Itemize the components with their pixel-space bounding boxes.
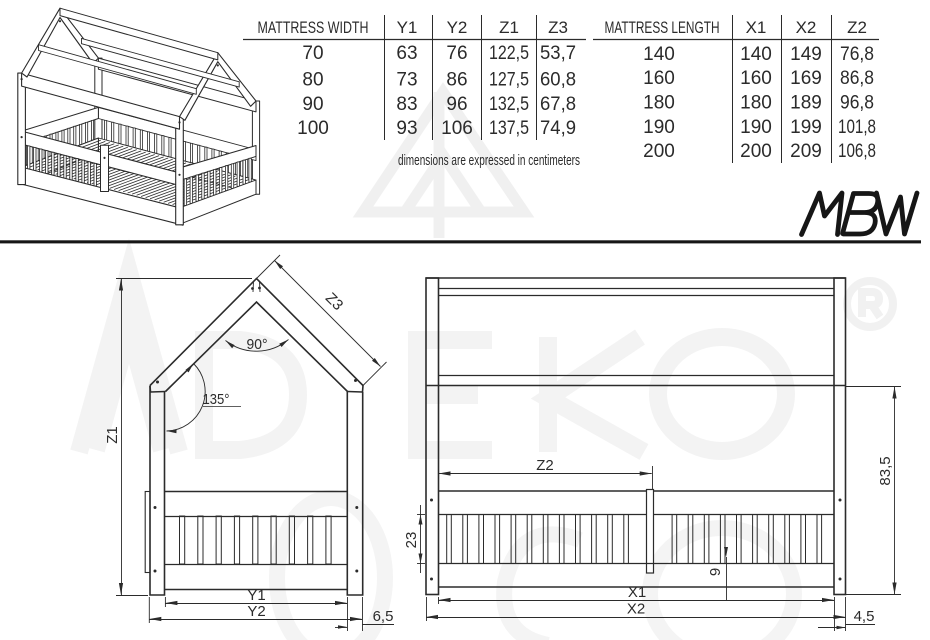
- svg-text:83: 83: [396, 94, 417, 115]
- svg-text:MATTRESS LENGTH: MATTRESS LENGTH: [605, 18, 720, 37]
- svg-text:190: 190: [740, 117, 772, 138]
- svg-text:Z2: Z2: [847, 18, 867, 37]
- svg-text:X1: X1: [628, 584, 646, 601]
- svg-text:180: 180: [740, 93, 772, 114]
- svg-text:73: 73: [396, 70, 417, 91]
- svg-text:74,9: 74,9: [540, 118, 576, 139]
- svg-text:200: 200: [643, 141, 675, 162]
- svg-text:Y1: Y1: [397, 18, 418, 37]
- svg-text:200: 200: [740, 141, 772, 162]
- svg-text:86,8: 86,8: [840, 68, 874, 89]
- svg-text:96: 96: [446, 94, 467, 115]
- svg-text:132,5: 132,5: [489, 94, 529, 115]
- svg-text:149: 149: [790, 44, 822, 65]
- svg-text:Y1: Y1: [247, 587, 265, 604]
- svg-text:X2: X2: [796, 18, 817, 37]
- svg-text:209: 209: [790, 141, 822, 162]
- svg-text:101,8: 101,8: [838, 117, 876, 138]
- svg-text:90: 90: [302, 94, 323, 115]
- svg-text:90°: 90°: [247, 336, 268, 353]
- svg-text:53,7: 53,7: [540, 43, 576, 64]
- svg-text:X2: X2: [627, 601, 645, 618]
- svg-text:127,5: 127,5: [489, 70, 529, 91]
- svg-text:dimensions are expressed in ce: dimensions are expressed in centimeters: [398, 153, 580, 169]
- svg-text:189: 189: [790, 93, 822, 114]
- svg-text:83,5: 83,5: [877, 456, 894, 485]
- svg-text:70: 70: [302, 43, 323, 64]
- svg-text:76: 76: [446, 43, 467, 64]
- svg-text:96,8: 96,8: [840, 93, 874, 114]
- svg-text:137,5: 137,5: [489, 118, 529, 139]
- svg-text:60,8: 60,8: [540, 70, 576, 91]
- svg-text:140: 140: [740, 44, 772, 65]
- svg-text:MATTRESS WIDTH: MATTRESS WIDTH: [258, 18, 369, 37]
- svg-text:23: 23: [403, 532, 420, 549]
- svg-text:80: 80: [302, 70, 323, 91]
- svg-text:X1: X1: [746, 18, 767, 37]
- svg-text:86: 86: [446, 70, 467, 91]
- svg-text:9: 9: [707, 568, 724, 576]
- svg-text:180: 180: [643, 93, 675, 114]
- svg-text:190: 190: [643, 117, 675, 138]
- svg-text:135°: 135°: [203, 391, 230, 408]
- svg-text:Y2: Y2: [247, 603, 265, 620]
- svg-text:100: 100: [297, 118, 329, 139]
- svg-text:6,5: 6,5: [373, 608, 394, 625]
- svg-text:140: 140: [643, 44, 675, 65]
- svg-text:Z2: Z2: [536, 457, 554, 474]
- svg-text:93: 93: [396, 118, 417, 139]
- svg-text:122,5: 122,5: [489, 43, 529, 64]
- svg-text:Z1: Z1: [104, 426, 121, 444]
- svg-text:106,8: 106,8: [838, 141, 876, 162]
- svg-text:4,5: 4,5: [854, 608, 875, 625]
- svg-text:Y2: Y2: [447, 18, 468, 37]
- svg-text:63: 63: [396, 43, 417, 64]
- svg-text:160: 160: [740, 68, 772, 89]
- svg-text:Z1: Z1: [499, 18, 519, 37]
- svg-text:106: 106: [441, 118, 473, 139]
- svg-text:76,8: 76,8: [840, 44, 874, 65]
- svg-text:199: 199: [790, 117, 822, 138]
- svg-text:169: 169: [790, 68, 822, 89]
- svg-text:Z3: Z3: [548, 18, 568, 37]
- svg-text:67,8: 67,8: [540, 94, 576, 115]
- svg-text:160: 160: [643, 68, 675, 89]
